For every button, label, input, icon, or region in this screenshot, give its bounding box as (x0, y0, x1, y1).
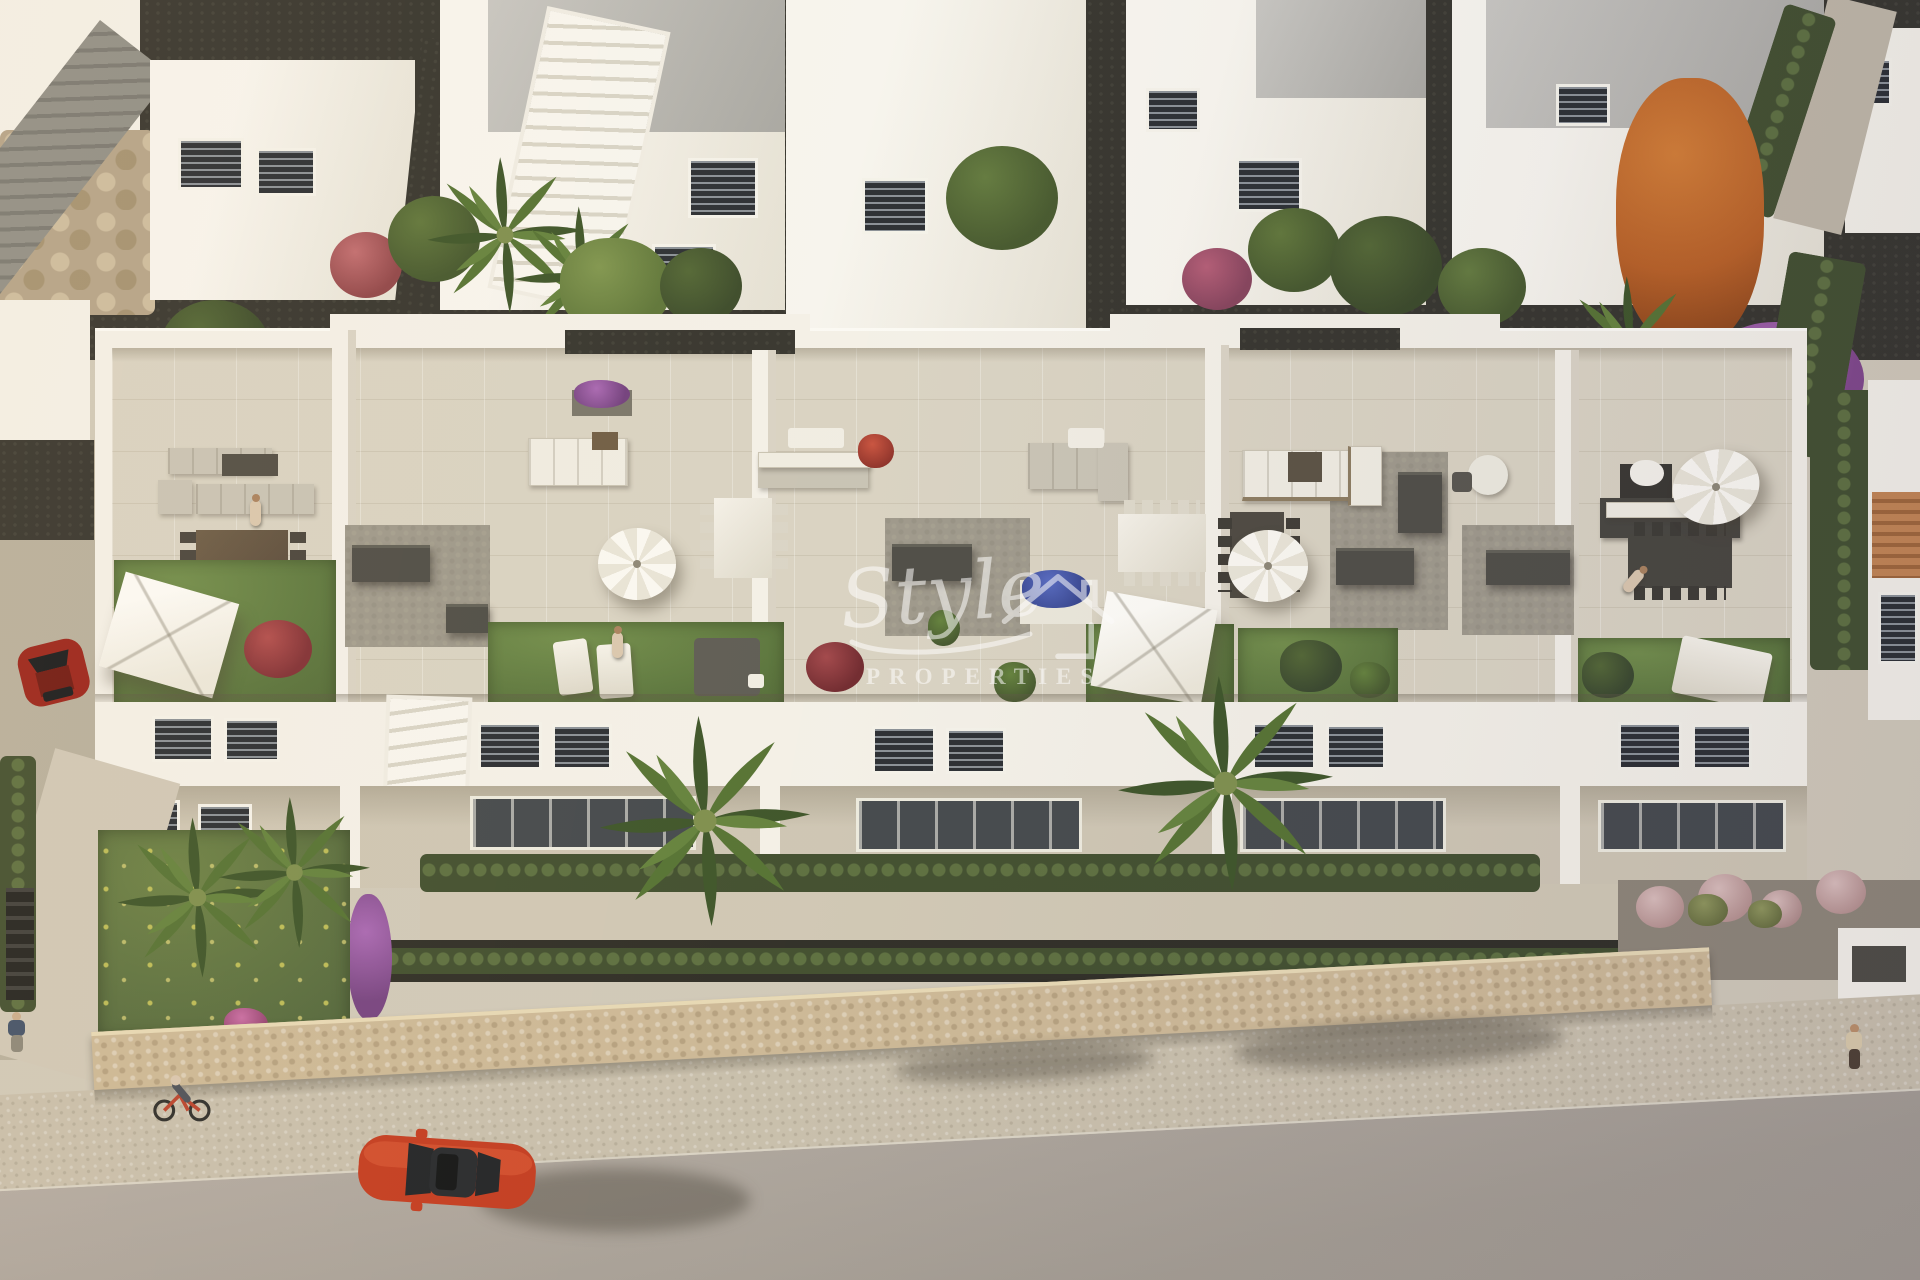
stairhead-box (1336, 548, 1414, 585)
pedestrian-right (1842, 1024, 1870, 1072)
white-throw (1630, 460, 1664, 486)
cyclist (146, 1072, 222, 1124)
facade-window (1618, 722, 1682, 770)
stairhead-box (1398, 472, 1442, 533)
stairhead-box (892, 544, 972, 581)
terracotta-roof (1872, 492, 1920, 578)
corner-sofa-arm (1098, 443, 1128, 501)
neighbor-window (1878, 592, 1918, 664)
porch-glazing (856, 798, 1082, 852)
red-flower-planter (858, 434, 894, 468)
garden-palm-tree (212, 790, 377, 955)
coffee-table (788, 428, 844, 448)
pedestrian-left (4, 1012, 34, 1054)
sun-lounger (552, 638, 593, 696)
white-dining-table (1118, 514, 1206, 572)
architectural-render-scene: Style PROPERTIES (0, 0, 1920, 1280)
villa4-window (1236, 158, 1302, 212)
pink-boulder (1636, 886, 1684, 928)
coffee-table (1068, 428, 1104, 448)
green-tree (1330, 216, 1442, 316)
porch-glazing (1598, 800, 1786, 852)
front-hedge (420, 854, 1540, 892)
green-shrub (1582, 652, 1634, 698)
villa1-window (178, 138, 244, 190)
side-table (748, 674, 764, 688)
dining-chairs (772, 504, 788, 574)
facade-window (946, 728, 1006, 774)
left-gravel (0, 440, 94, 540)
villa4-flat-roof (1256, 0, 1426, 98)
divider-shadow (348, 330, 356, 712)
gravel-path (1086, 0, 1126, 330)
stairhead-box (446, 604, 488, 633)
terrace-person (250, 500, 261, 526)
green-tree (660, 248, 742, 324)
red-shrub (806, 642, 864, 692)
chair (1452, 472, 1472, 492)
potted-plant (928, 610, 960, 646)
dining-chairs (1124, 570, 1200, 586)
purple-flowers (574, 380, 630, 408)
facade-window (478, 722, 542, 770)
green-shrub (1350, 662, 1390, 698)
green-tree (1012, 206, 1100, 288)
pedestrian-legs (1849, 1049, 1860, 1069)
front-palm-tree (590, 706, 820, 936)
bench-cushions (758, 452, 870, 468)
white-round-parasol (598, 528, 676, 600)
blue-flowers (1022, 570, 1090, 608)
stairhead-box (352, 545, 430, 582)
facade-window (872, 726, 936, 774)
square-table (1288, 452, 1322, 482)
villa5-window (1556, 84, 1610, 126)
left-building-corner (0, 300, 90, 440)
back-parapet-shadow (112, 348, 1792, 362)
round-table (1468, 455, 1508, 495)
front-palm-tree (1108, 666, 1343, 901)
lawn-person (612, 632, 623, 658)
armchair (158, 480, 192, 514)
facade-window (152, 716, 214, 762)
drainage-grate (6, 888, 34, 1000)
pink-shrub (1182, 248, 1252, 310)
back-lightwell (1240, 328, 1400, 350)
side-table (592, 432, 618, 450)
pedestrian-torso (8, 1020, 25, 1036)
villa1-window (256, 148, 316, 196)
dark-dining-table (1628, 534, 1732, 588)
ornamental-grass (1688, 894, 1728, 926)
pedestrian-torso (1846, 1032, 1862, 1050)
green-tree (1248, 208, 1340, 292)
coffee-table (222, 454, 278, 476)
stairhead-box (1486, 550, 1570, 585)
pink-boulder (1816, 870, 1866, 914)
corner-sofa-arm (1348, 446, 1382, 506)
white-dining-table (714, 498, 772, 578)
porch-pillar (1560, 786, 1580, 888)
villa4-window (1146, 88, 1200, 132)
red-sports-car (349, 1115, 546, 1228)
red-shrub (244, 620, 312, 678)
pedestrian-legs (11, 1035, 23, 1052)
facade-window (224, 718, 280, 762)
dining-chairs (1634, 586, 1726, 600)
ornamental-grass (1748, 900, 1782, 928)
white-round-parasol (1228, 530, 1308, 602)
villa2-window (688, 158, 758, 218)
facade-window (1692, 724, 1752, 770)
